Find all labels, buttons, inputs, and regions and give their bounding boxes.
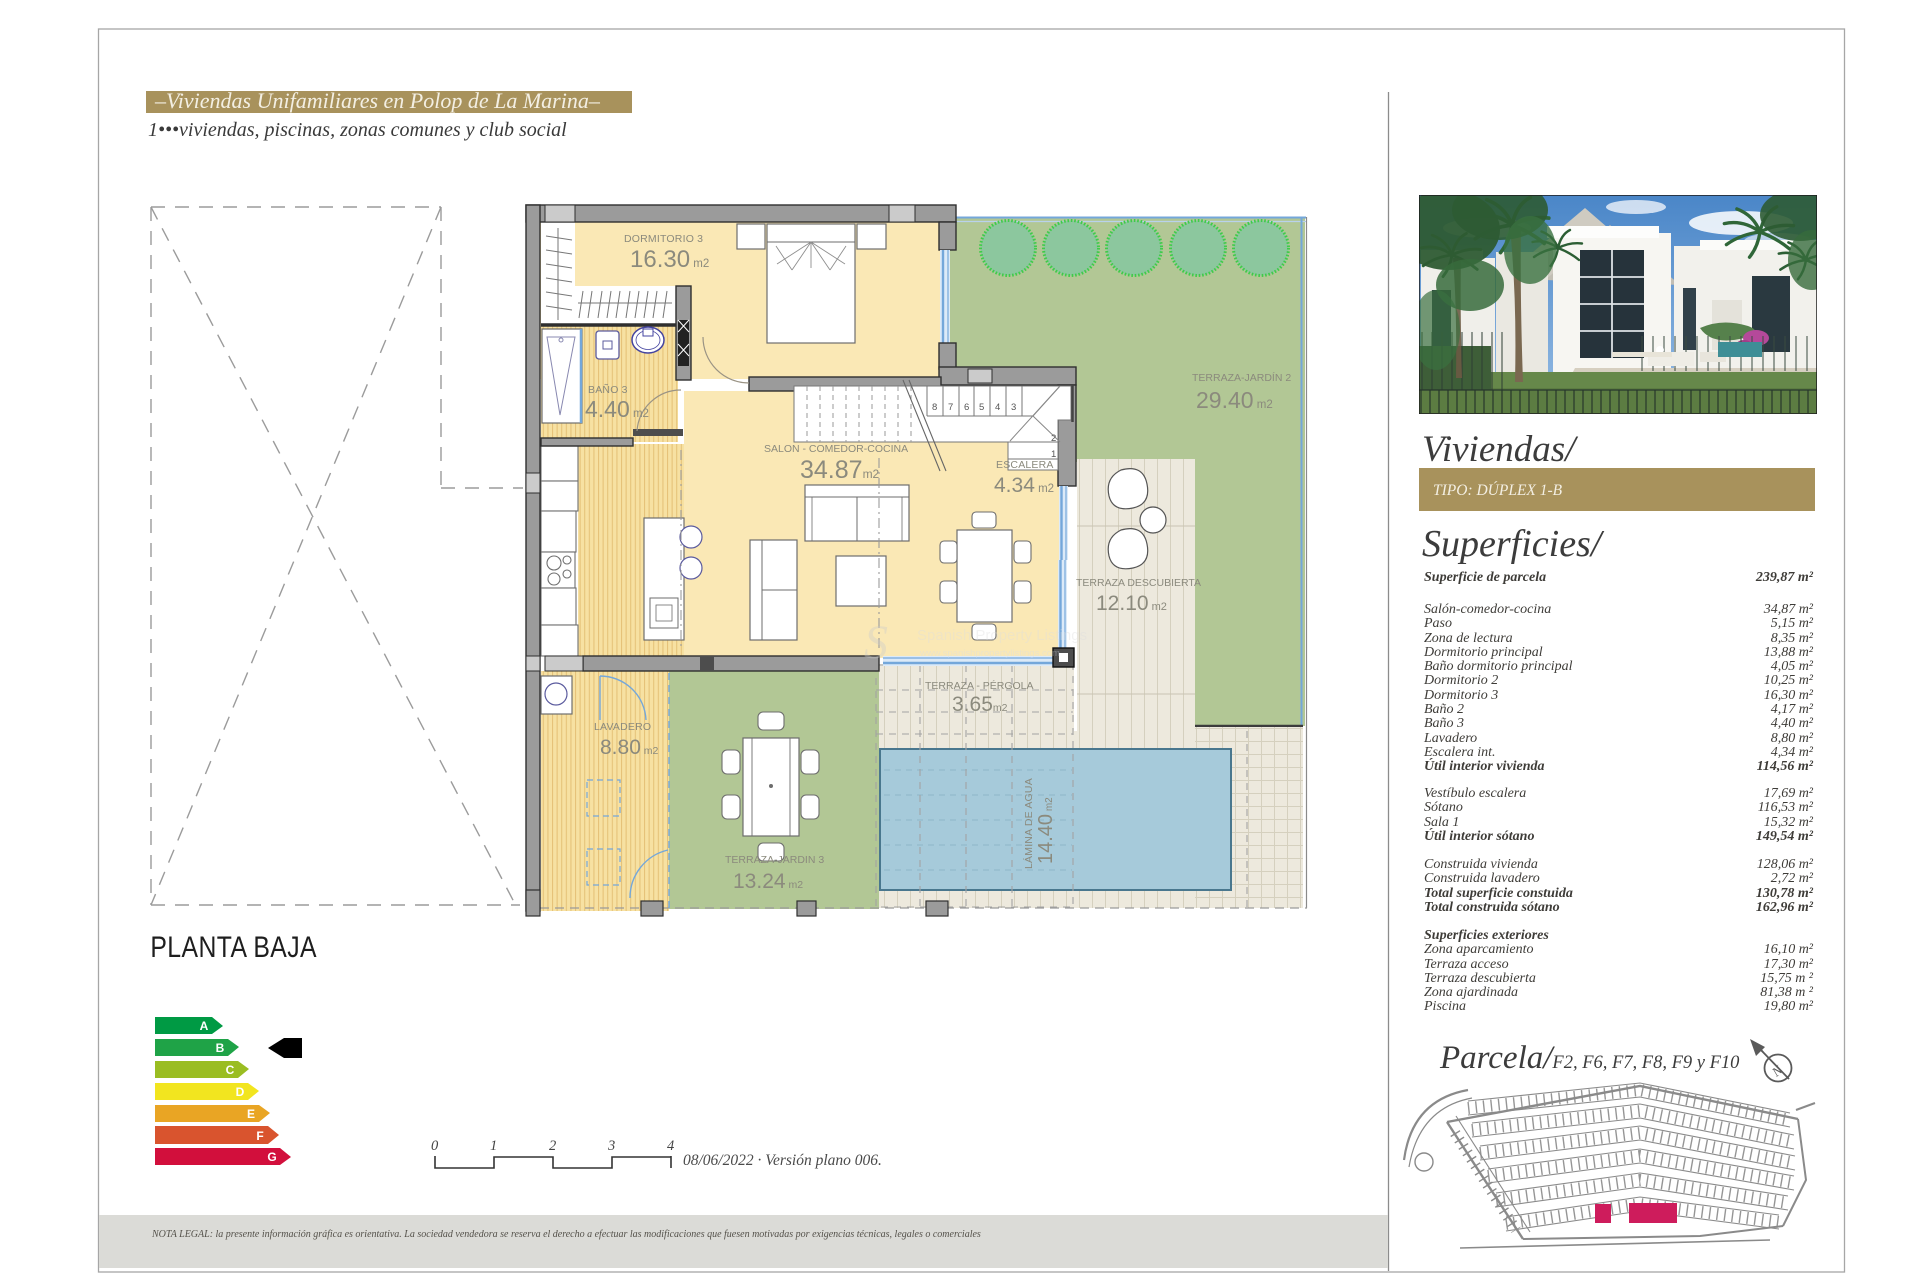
svg-text:2: 2 bbox=[549, 1138, 556, 1154]
svg-text:7: 7 bbox=[948, 402, 953, 413]
svg-text:F: F bbox=[256, 1129, 263, 1143]
svg-text:NOTA LEGAL: la presente inform: NOTA LEGAL: la presente información gráf… bbox=[151, 1229, 981, 1240]
svg-text:6: 6 bbox=[964, 402, 969, 413]
svg-text:8: 8 bbox=[932, 402, 937, 413]
svg-text:0: 0 bbox=[431, 1138, 439, 1154]
svg-text:D: D bbox=[236, 1085, 245, 1099]
svg-text:08/06/2022 · Versión plano 006: 08/06/2022 · Versión plano 006. bbox=[683, 1152, 882, 1169]
svg-text:C: C bbox=[226, 1063, 235, 1077]
svg-text:1: 1 bbox=[490, 1138, 497, 1154]
svg-text:SALON - COMEDOR-COCINA: SALON - COMEDOR-COCINA bbox=[764, 443, 908, 455]
svg-text:A: A bbox=[200, 1019, 209, 1033]
svg-text:Spanish Property Listings: Spanish Property Listings bbox=[917, 627, 1087, 644]
svg-text:TERRAZA DESCUBIERTA: TERRAZA DESCUBIERTA bbox=[1076, 577, 1201, 589]
svg-text:LAVADERO: LAVADERO bbox=[594, 721, 651, 733]
svg-text:www.spanishpropertylistings.co: www.spanishpropertylistings.com bbox=[919, 648, 1060, 659]
svg-text:3: 3 bbox=[607, 1138, 615, 1154]
svg-text:4: 4 bbox=[667, 1138, 674, 1154]
svg-text:DORMITORIO 3: DORMITORIO 3 bbox=[624, 233, 703, 245]
svg-text:PLANTA BAJA: PLANTA BAJA bbox=[150, 930, 317, 964]
svg-text:–Viviendas Unifamiliares en Po: –Viviendas Unifamiliares en Polop de La … bbox=[154, 88, 601, 113]
svg-text:B: B bbox=[216, 1041, 225, 1055]
svg-text:BAÑO 3: BAÑO 3 bbox=[588, 383, 628, 396]
svg-text:G: G bbox=[267, 1150, 276, 1164]
svg-text:2: 2 bbox=[1051, 433, 1056, 444]
svg-text:TERRAZA-JARDIN 3: TERRAZA-JARDIN 3 bbox=[725, 854, 824, 866]
svg-text:ESCALERA: ESCALERA bbox=[996, 459, 1054, 471]
svg-text:5: 5 bbox=[979, 402, 984, 413]
svg-text:1•••viviendas, piscinas, zonas: 1•••viviendas, piscinas, zonas comunes y… bbox=[148, 119, 567, 141]
svg-text:S: S bbox=[864, 616, 888, 669]
svg-text:TERRAZA - PÉRGOLA: TERRAZA - PÉRGOLA bbox=[925, 679, 1034, 692]
svg-text:4: 4 bbox=[995, 402, 1000, 413]
svg-text:E: E bbox=[247, 1107, 255, 1121]
svg-text:3: 3 bbox=[1011, 402, 1016, 413]
svg-text:LÁMINA DE AGUA: LÁMINA DE AGUA bbox=[1022, 778, 1035, 869]
svg-text:TERRAZA-JARDÍN 2: TERRAZA-JARDÍN 2 bbox=[1192, 371, 1291, 384]
svg-text:N: N bbox=[1768, 1061, 1786, 1080]
